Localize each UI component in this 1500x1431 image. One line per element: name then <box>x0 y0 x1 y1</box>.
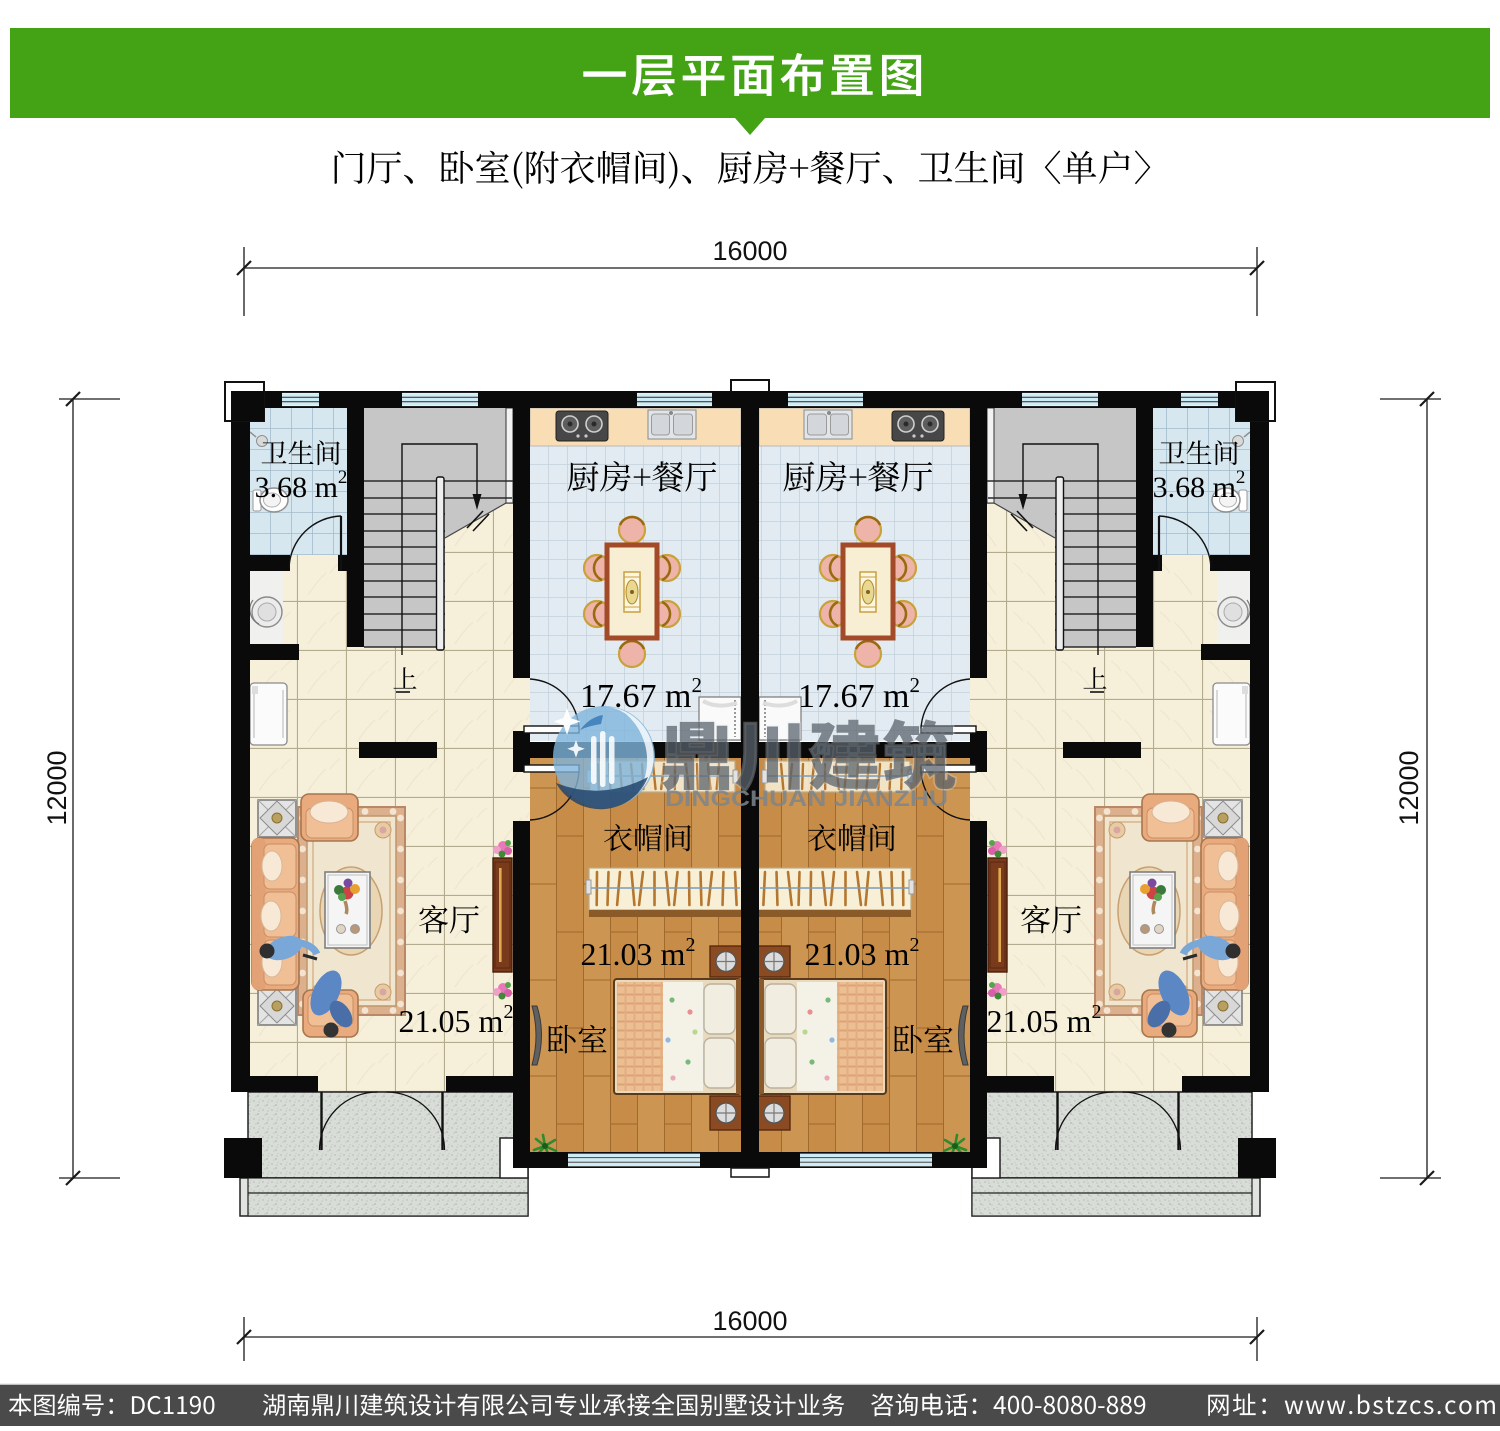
svg-text:21.05 m2: 21.05 m2 <box>987 1001 1102 1039</box>
svg-text:21.03 m2: 21.03 m2 <box>805 934 920 972</box>
svg-text:16000: 16000 <box>712 236 787 266</box>
svg-text:3.68 m2: 3.68 m2 <box>1153 467 1246 504</box>
svg-text:DINGCHUAN JIANZHU: DINGCHUAN JIANZHU <box>665 786 948 811</box>
svg-text:12000: 12000 <box>1394 750 1424 825</box>
svg-text:17.67 m2: 17.67 m2 <box>798 673 920 715</box>
svg-text:16000: 16000 <box>712 1306 787 1336</box>
svg-text:3.68 m2: 3.68 m2 <box>255 467 348 504</box>
svg-text:12000: 12000 <box>42 750 72 825</box>
svg-text:21.03 m2: 21.03 m2 <box>581 934 696 972</box>
svg-text:21.05 m2: 21.05 m2 <box>399 1001 514 1039</box>
